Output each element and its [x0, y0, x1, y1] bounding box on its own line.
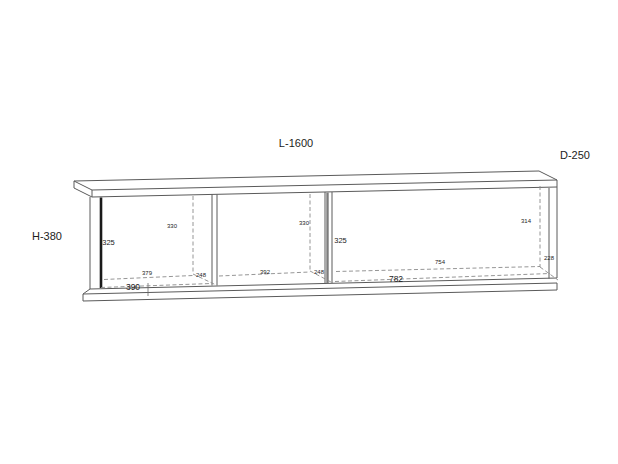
depth-dimension-label: D-250	[560, 149, 590, 161]
depth-mid-label: 248	[314, 269, 325, 275]
back-width-mid-label: 392	[260, 269, 271, 275]
depth-left-label: 248	[196, 272, 207, 278]
furniture-dimension-drawing: L-1600 D-250 H-380 325 325 330 330 314 3…	[0, 0, 618, 464]
front-height-right-label: 325	[334, 236, 347, 245]
drawing-canvas: L-1600 D-250 H-380 325 325 330 330 314 3…	[0, 0, 618, 464]
back-height-left-label: 330	[167, 223, 178, 229]
top-panel	[74, 171, 557, 197]
partition-left	[212, 195, 217, 286]
height-dimension-label: H-380	[32, 230, 62, 242]
back-height-mid-label: 330	[299, 220, 310, 226]
front-width-left-label: 390	[126, 282, 140, 292]
hidden-edges	[101, 186, 558, 288]
back-width-right-label: 754	[435, 259, 446, 265]
front-width-right-label: 782	[389, 274, 403, 284]
length-dimension-label: L-1600	[279, 137, 313, 149]
partition-right	[325, 192, 332, 283]
depth-right-label: 228	[544, 255, 555, 261]
back-height-right-label: 314	[521, 218, 532, 224]
back-width-left-label: 379	[142, 270, 153, 276]
front-height-left-label: 325	[102, 238, 115, 247]
